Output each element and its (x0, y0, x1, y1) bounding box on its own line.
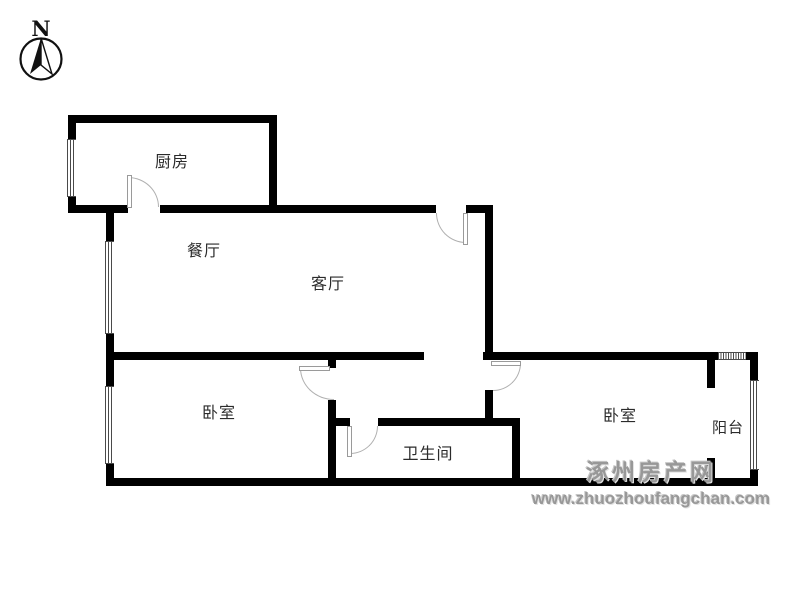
wall-top-segment-a (68, 205, 128, 213)
door-arc-bathroom-icon (350, 426, 378, 454)
room-label-dining: 餐厅 (187, 244, 221, 260)
door-panel-bathroom (347, 426, 352, 457)
wall-bedroom-right-top (483, 352, 718, 360)
wall-top-right-corner (746, 352, 758, 360)
wall-balcony-right-upper (750, 360, 758, 380)
compass-needle-dark-half (30, 38, 41, 74)
compass-needle-light-half (41, 38, 52, 74)
wall-bathroom-right (512, 426, 520, 478)
room-label-balcony: 阳台 (712, 421, 744, 436)
door-panel-kitchen (127, 175, 132, 208)
wall-left-segment-b (106, 334, 114, 386)
wall-balcony-divider-upper (707, 360, 715, 388)
watermark-site-url: www.zhuozhoufangchan.com (526, 489, 776, 509)
room-label-living: 客厅 (311, 277, 345, 293)
wall-kitchen-top (68, 115, 277, 123)
room-label-bathroom: 卫生间 (402, 447, 453, 463)
floor-plan-canvas: N 厨房 餐厅 客厅 卧室 卫生间 卧室 阳台 (0, 0, 800, 600)
wall-bathroom-top-a (330, 418, 350, 426)
watermark: 涿州房产网 www.zhuozhoufangchan.com (526, 453, 776, 509)
door-panel-bedroom-left (299, 366, 330, 371)
door-arc-entry-icon (436, 213, 466, 243)
wall-bedroom-right-left-stub (485, 390, 493, 418)
door-arc-bedroom-right-icon (493, 363, 521, 391)
window-dining-icon (105, 241, 114, 334)
wall-mid-horizontal (106, 352, 424, 360)
wall-kitchen-right (269, 115, 277, 213)
wall-bathroom-top-b (378, 418, 520, 426)
room-label-bedroom-right: 卧室 (603, 409, 637, 425)
wall-kitchen-left-upper (68, 115, 76, 139)
wall-living-right (485, 213, 493, 360)
door-panel-bedroom-right (491, 361, 521, 366)
wall-top-segment-c (466, 205, 493, 213)
room-label-kitchen: 厨房 (155, 155, 189, 171)
window-bedroom-left-icon (105, 386, 114, 464)
window-balcony-top-icon (718, 352, 746, 360)
window-kitchen-icon (67, 139, 76, 197)
room-label-bedroom-left: 卧室 (202, 406, 236, 422)
door-panel-entry (463, 213, 468, 245)
compass-north-icon: N (12, 8, 72, 90)
wall-top-segment-b (160, 205, 436, 213)
door-arc-bedroom-left-icon (300, 368, 334, 400)
watermark-site-name: 涿州房产网 (526, 453, 776, 487)
wall-left-segment-a (106, 213, 114, 241)
door-arc-kitchen-icon (128, 177, 159, 207)
compass-north-label: N (31, 16, 50, 41)
wall-bedroom-left-right (328, 400, 336, 478)
